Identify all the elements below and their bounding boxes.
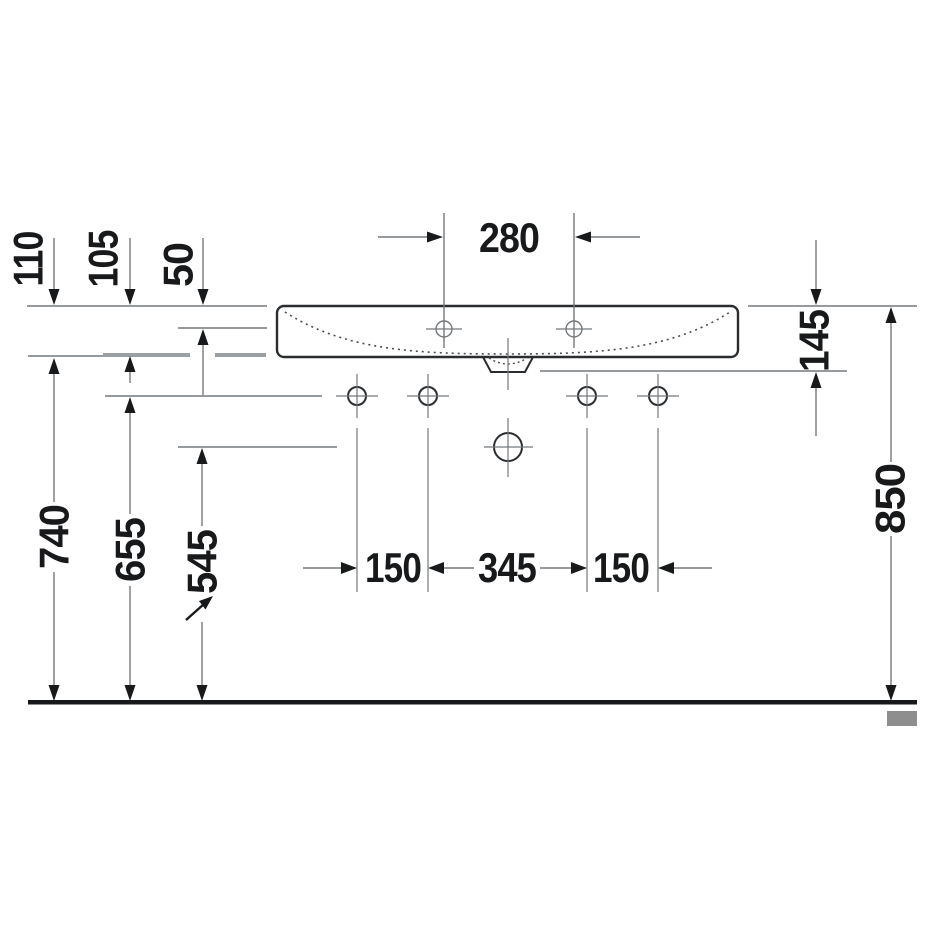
dimension-145: 145	[791, 240, 838, 436]
arrowhead-up-icon	[125, 397, 136, 413]
washbasin-dimension-drawing: 280 110 105 50 740 655 5	[0, 0, 929, 929]
dimension-740: 740	[31, 374, 78, 701]
arrowhead-down-icon	[198, 289, 209, 305]
arrowhead-up-icon	[198, 329, 209, 345]
arrowhead-right-icon	[427, 232, 443, 243]
arrowhead-up-icon	[125, 356, 136, 372]
dimension-label-345: 345	[478, 544, 537, 591]
dimension-label-280: 280	[479, 214, 539, 261]
arrowhead-up-icon	[811, 372, 822, 388]
dimension-label-150-left: 150	[365, 544, 421, 591]
dimension-655: 655	[107, 397, 154, 701]
direction-arrow-icon	[186, 596, 213, 620]
arrowhead-up-icon	[197, 448, 208, 464]
drain-hole	[484, 418, 533, 477]
dimension-280: 280	[378, 213, 640, 348]
arrowhead-down-icon	[811, 289, 822, 305]
arrowhead-down-icon	[49, 685, 60, 701]
dimension-label-740: 740	[31, 505, 78, 569]
arrowhead-up-icon	[886, 307, 897, 323]
arrowhead-left-icon	[658, 562, 674, 574]
arrowhead-left-icon	[428, 562, 444, 574]
dimension-label-545: 545	[179, 529, 226, 594]
dimension-label-105: 105	[80, 230, 127, 288]
dimension-50: 50	[155, 238, 209, 395]
arrowhead-right-icon	[341, 562, 357, 574]
dimension-label-50: 50	[155, 243, 202, 287]
direction-arrow-shaft	[186, 604, 204, 620]
dimension-label-145: 145	[791, 309, 838, 372]
arrowhead-down-icon	[125, 289, 136, 305]
reference-lines	[27, 306, 917, 447]
dimension-row-150-345-150: 150 345 150	[303, 544, 712, 591]
arrowhead-up-icon	[49, 358, 60, 374]
wall-section-block	[887, 711, 917, 726]
dimension-850: 850	[867, 307, 914, 701]
arrowhead-down-icon	[197, 685, 208, 701]
arrowhead-left-icon	[575, 232, 591, 243]
dimension-label-110: 110	[5, 232, 52, 287]
dimension-110: 110	[5, 232, 60, 375]
dimension-545: 545	[179, 448, 226, 701]
dimension-label-655: 655	[107, 517, 154, 582]
arrowhead-down-icon	[125, 685, 136, 701]
floor-line	[28, 700, 917, 705]
basin-front-view	[277, 306, 738, 390]
technical-drawing-canvas: 280 110 105 50 740 655 5	[0, 0, 929, 929]
arrowhead-down-icon	[49, 289, 60, 305]
arrowhead-down-icon	[886, 685, 897, 701]
dimension-label-850: 850	[867, 464, 914, 534]
dimension-label-150-right: 150	[593, 544, 649, 591]
arrowhead-right-icon	[571, 562, 587, 574]
